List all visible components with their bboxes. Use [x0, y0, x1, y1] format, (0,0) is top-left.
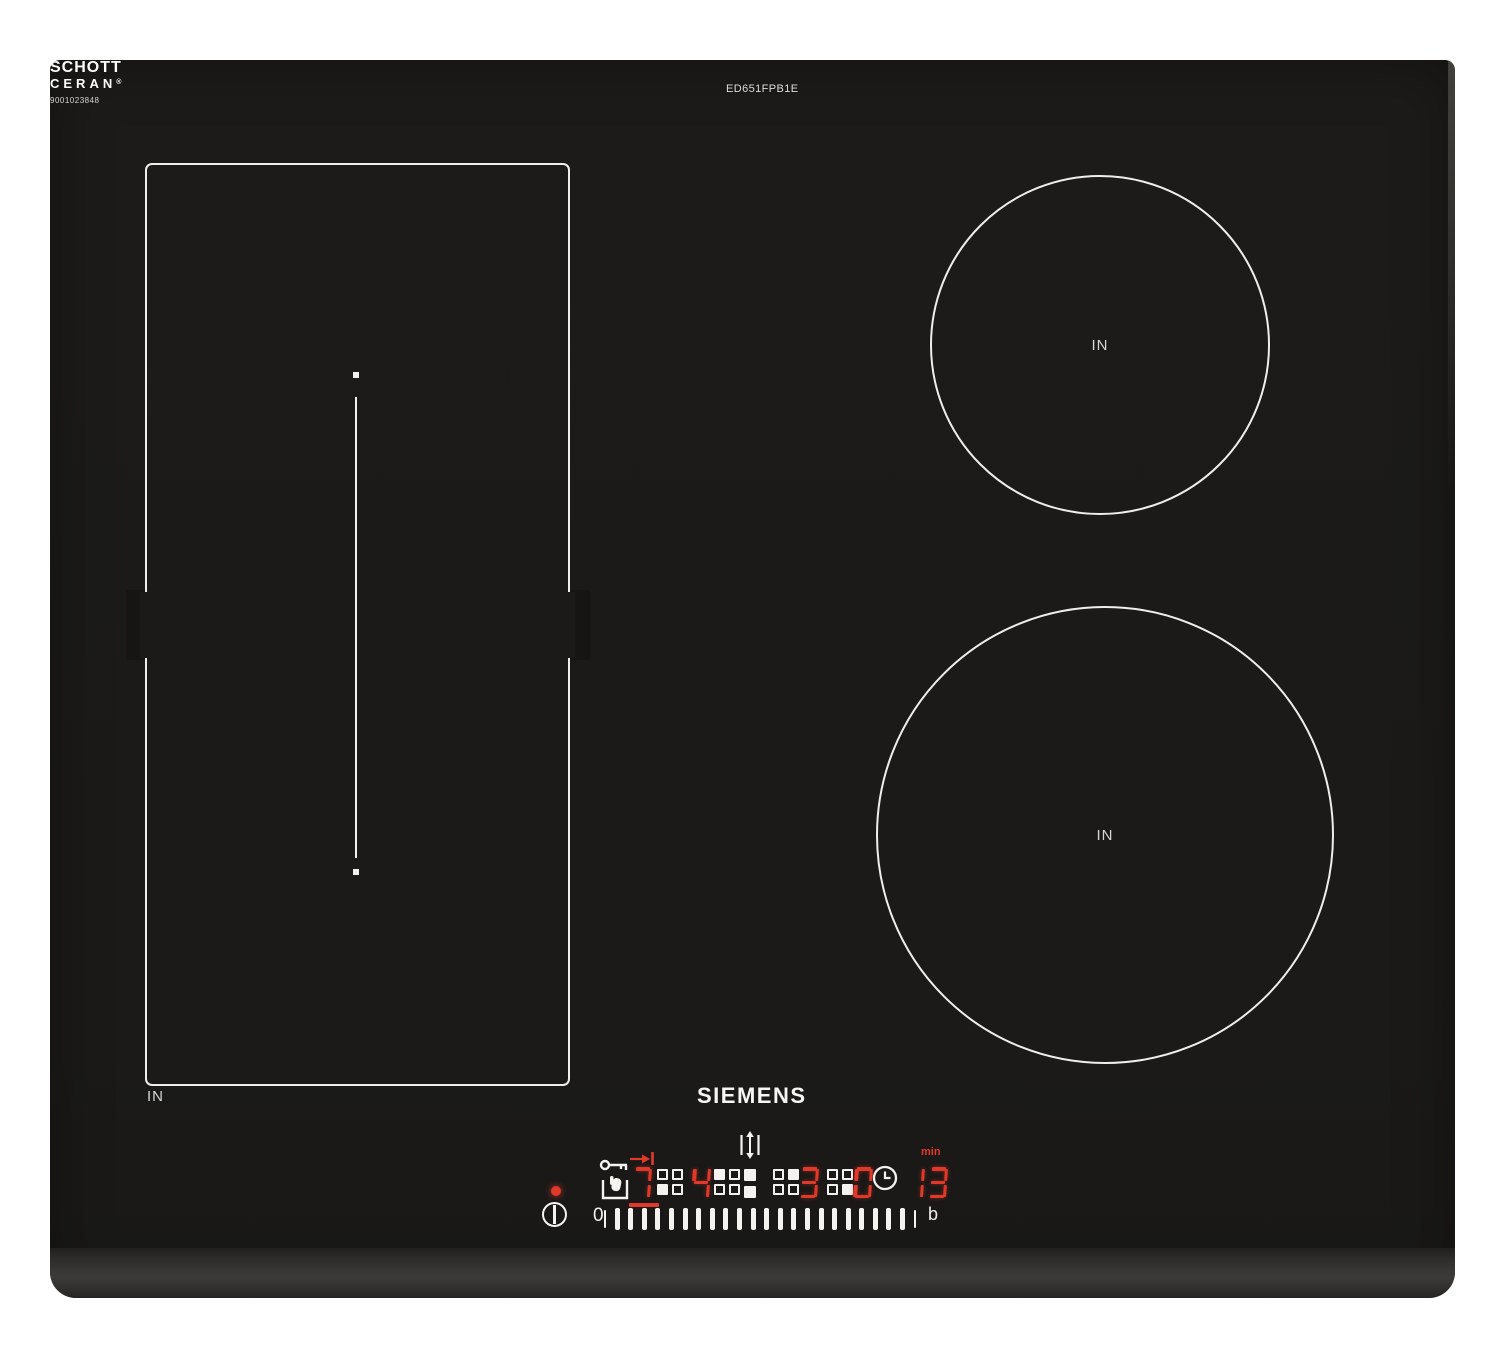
schott-line: SCHOTT: [50, 60, 1455, 77]
timer-unit-label: min: [921, 1146, 941, 1158]
power-slider[interactable]: [604, 1206, 916, 1232]
power-button[interactable]: [542, 1202, 567, 1227]
zone-back-right-label: IN: [1092, 337, 1109, 354]
flex-zone-center-line: [355, 397, 357, 858]
power-display-back-right[interactable]: [800, 1167, 818, 1198]
zone-front-right: IN: [876, 606, 1334, 1064]
power-indicator-led: [551, 1186, 561, 1196]
power-display-flex-back[interactable]: [692, 1167, 710, 1198]
registered-mark: ®: [116, 79, 121, 86]
slider-max-label: b: [928, 1204, 938, 1225]
zone-indicator-back-right: [773, 1169, 799, 1195]
glass-edge-highlight: [1448, 60, 1455, 490]
move-pan-arrow-icon: [629, 1152, 655, 1165]
power-display-flex-front[interactable]: [633, 1167, 651, 1198]
flex-induction-zone: [145, 163, 570, 1086]
power-display-front-right[interactable]: [854, 1167, 872, 1198]
flex-border-gap-right: [565, 592, 575, 658]
front-edge: [50, 1248, 1455, 1298]
zone-indicator-flex-back: [714, 1169, 740, 1195]
paired-squares-icon: [744, 1169, 756, 1198]
zone-front-right-label: IN: [1097, 827, 1114, 844]
flex-zone-dot-bottom: [353, 869, 359, 875]
product-photo: ED651FPB1E SCHOTT CERAN® 9001023848 IN I…: [0, 0, 1500, 1359]
power-standby-icon: [553, 1205, 556, 1224]
model-number: ED651FPB1E: [726, 83, 798, 95]
zone-indicator-front-right: [827, 1169, 853, 1195]
child-lock-key-hand-icon[interactable]: [599, 1158, 633, 1204]
flex-zone-vertical-arrows-icon: [740, 1130, 760, 1160]
siemens-logo: SIEMENS: [697, 1083, 807, 1109]
flex-zone-dot-top: [353, 372, 359, 378]
zone-indicator-flex-front: [657, 1169, 683, 1195]
timer-clock-icon[interactable]: [872, 1165, 898, 1191]
slider-min-label: 0: [593, 1205, 604, 1227]
flex-border-gap-left: [140, 592, 150, 658]
flex-zone-label: IN: [147, 1088, 164, 1105]
timer-display: [906, 1167, 947, 1198]
induction-hob: ED651FPB1E SCHOTT CERAN® 9001023848 IN I…: [50, 60, 1455, 1298]
glass-code: 9001023848: [50, 97, 1455, 105]
zone-back-right: IN: [930, 175, 1270, 515]
